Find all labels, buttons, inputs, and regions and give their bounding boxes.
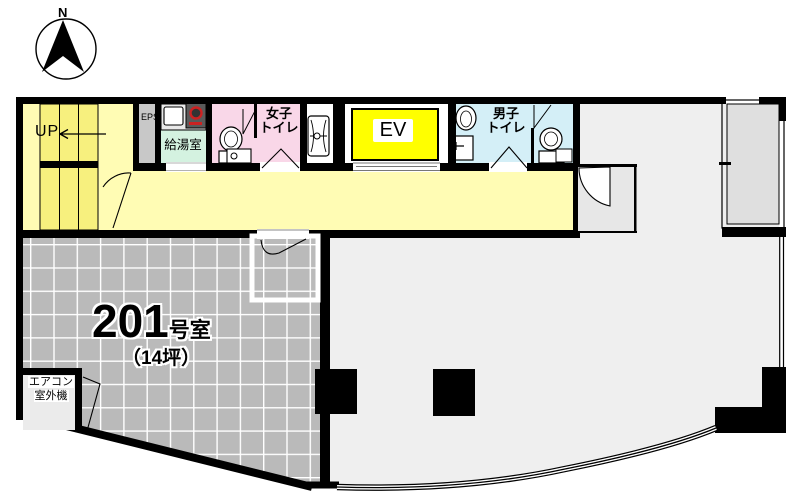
elevator-label: EV [373,119,413,142]
balcony-bottom-wall [722,227,786,237]
right-window [780,237,784,369]
window-sash-tick [719,162,731,165]
aircon-box-top-wall [20,368,82,375]
aircon-label-line2: 室外機 [34,390,69,402]
mens-toilet-label-line2: トイレ [486,120,525,135]
stove-burner-icon [191,108,202,119]
mens-stall-wall [531,128,534,168]
washbasin-drain [314,133,320,139]
entry-landing-bottom-line [578,231,637,233]
corridor-floor [23,171,573,230]
kitchen-sink-icon [164,107,183,125]
compass [36,19,96,79]
room-number: 201 [92,295,169,347]
womens-toilet-label: 女子 トイレ [256,107,302,134]
eps-label: EPS [141,113,153,122]
floor-plan: N UP EPS 給湯室 女子 トイレ EV 男子 トイレ 201号室 （14坪… [0,0,800,500]
stair-landing-bar [40,161,98,168]
aircon-unit-label: エアコン 室外機 [24,376,78,404]
paper-holder-icon [556,149,572,162]
stove-handle [189,122,202,125]
floor-plan-drawing [0,0,800,500]
room-number-label: 201号室 [92,297,211,345]
balcony-floor [727,104,779,224]
stairs-up-label: UP [35,124,59,141]
room-number-suffix: 号室 [169,319,211,342]
entry-landing-right-line [634,164,637,233]
toilet-icon [540,128,562,150]
aircon-label-line1: エアコン [28,376,74,388]
mens-toilet-label: 男子 トイレ [483,107,529,134]
entry-landing-top-line [573,164,637,167]
kitchenette-label: 給湯室 [159,139,207,152]
womens-toilet-label-line2: トイレ [259,120,298,135]
compass-north-label: N [58,6,67,20]
room-area-label: （14坪） [122,349,200,369]
urinal-icon [456,106,476,130]
